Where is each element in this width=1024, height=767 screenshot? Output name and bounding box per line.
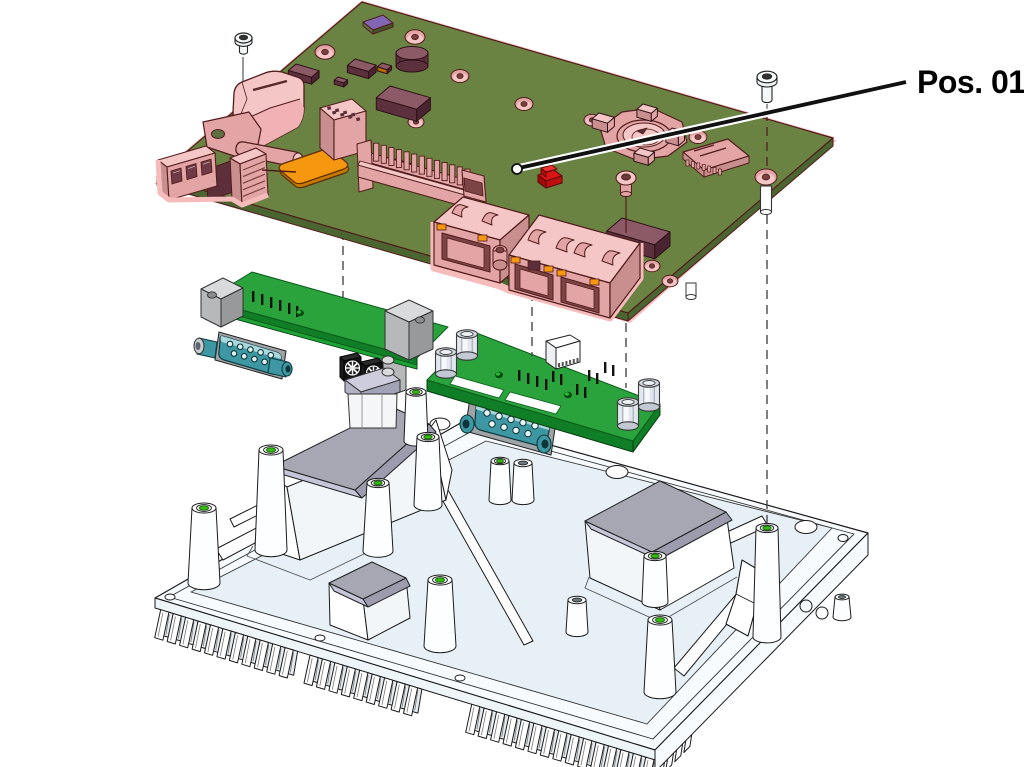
svg-text:Pos. 01: Pos. 01 (917, 64, 1024, 100)
